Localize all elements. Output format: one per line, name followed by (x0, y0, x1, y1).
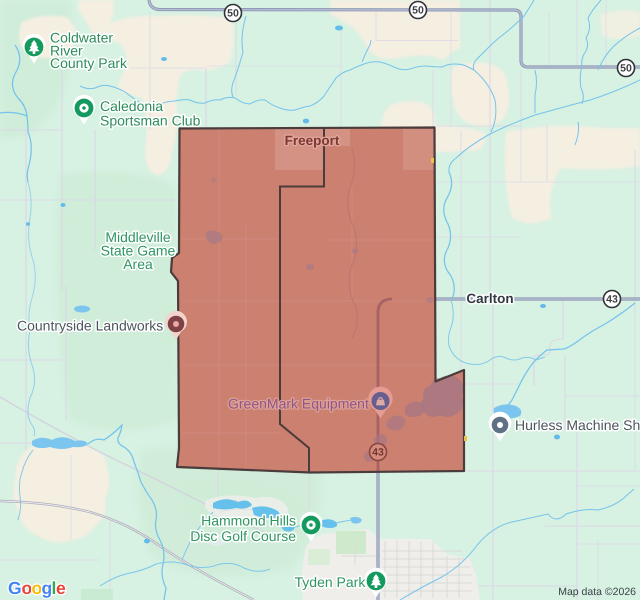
svg-text:Tyden Park: Tyden Park (295, 574, 367, 590)
svg-text:50: 50 (620, 63, 632, 75)
svg-text:43: 43 (606, 294, 618, 306)
svg-text:50: 50 (412, 5, 424, 17)
svg-text:43: 43 (372, 447, 384, 459)
svg-text:Countryside Landworks: Countryside Landworks (17, 318, 163, 334)
svg-text:Hurless Machine Sh: Hurless Machine Sh (515, 417, 640, 433)
svg-text:Area: Area (123, 256, 153, 272)
svg-text:Carlton: Carlton (466, 291, 513, 306)
svg-text:Sportsman Club: Sportsman Club (100, 113, 201, 129)
svg-text:Disc Golf Course: Disc Golf Course (190, 528, 296, 544)
svg-text:e: e (56, 578, 66, 598)
svg-text:G: G (8, 578, 22, 598)
svg-text:Hammond Hills: Hammond Hills (201, 513, 296, 529)
svg-text:County Park: County Park (50, 55, 128, 71)
svg-text:Map data ©2026: Map data ©2026 (558, 586, 636, 598)
svg-text:GreenMark Equipment: GreenMark Equipment (228, 396, 369, 412)
svg-text:Freeport: Freeport (285, 133, 340, 148)
svg-text:50: 50 (227, 8, 239, 20)
